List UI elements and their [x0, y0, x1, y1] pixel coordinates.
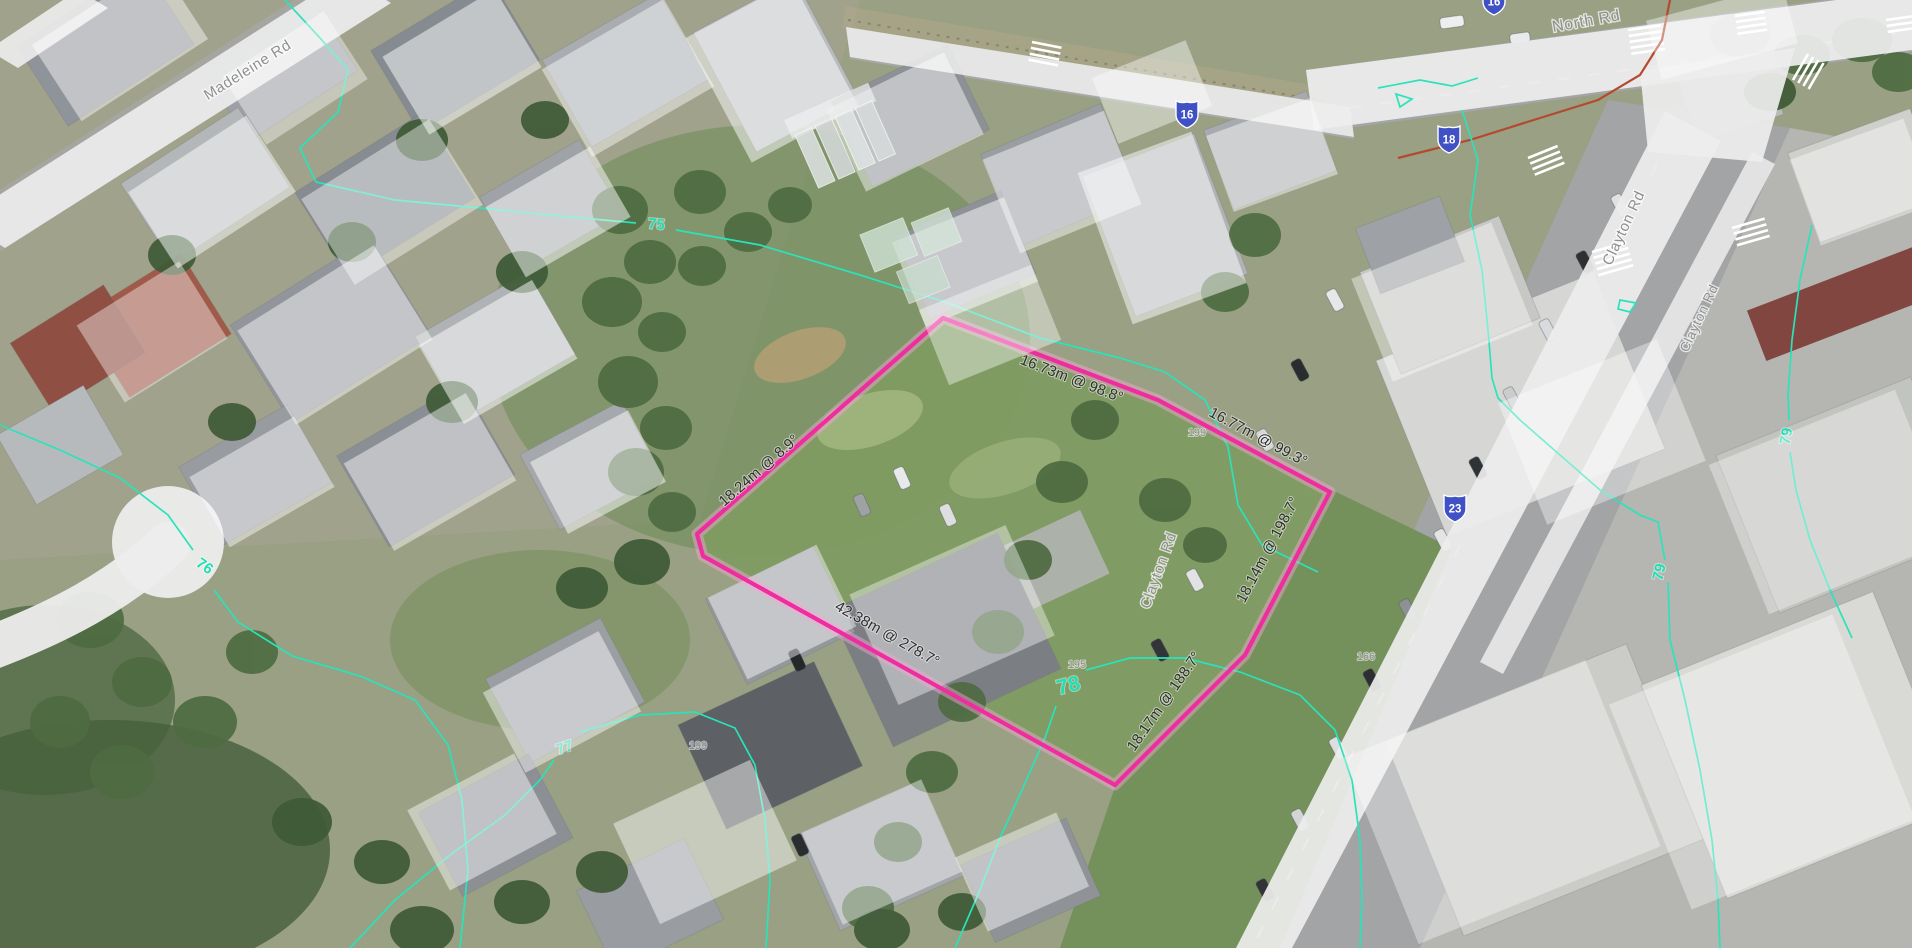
route-shield-carinish: 18 [1438, 126, 1460, 153]
route-shield-clayton: 23 [1444, 495, 1466, 522]
svg-text:23: 23 [1449, 504, 1462, 516]
svg-text:16: 16 [1181, 110, 1194, 122]
contour-label-79-east: 79 [1650, 562, 1670, 582]
map-canvas[interactable]: 75 76 77 78 79 79 [0, 0, 1912, 948]
house-number-199-east: 199 [1188, 427, 1206, 439]
contour-label-75: 75 [647, 215, 665, 233]
route-shield-north: 16 [1176, 101, 1198, 128]
house-number-199-south: 199 [689, 740, 707, 752]
house-number-195: 195 [1068, 659, 1086, 671]
house-number-166: 166 [1357, 651, 1375, 663]
svg-text:18: 18 [1443, 135, 1456, 147]
svg-text:16: 16 [1488, 0, 1501, 9]
aerial-map[interactable]: 75 76 77 78 79 79 [0, 0, 1912, 948]
